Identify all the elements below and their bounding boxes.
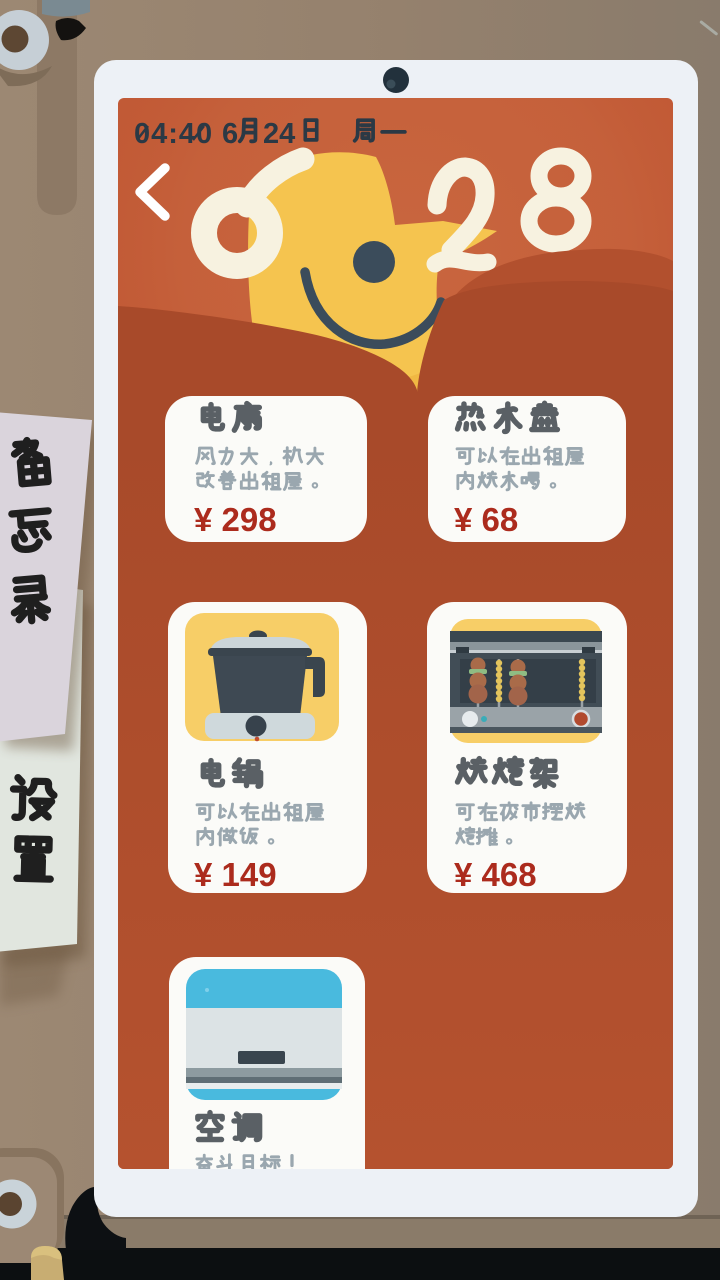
svg-text:¥ 298: ¥ 298 — [194, 501, 277, 538]
svg-text:24: 24 — [263, 118, 295, 150]
svg-text:¥ 468: ¥ 468 — [454, 856, 537, 893]
svg-text:¥ 68: ¥ 68 — [454, 501, 518, 538]
svg-text:6: 6 — [222, 118, 238, 150]
svg-text:04:40: 04:40 — [134, 118, 213, 150]
svg-text:¥ 149: ¥ 149 — [194, 856, 277, 893]
